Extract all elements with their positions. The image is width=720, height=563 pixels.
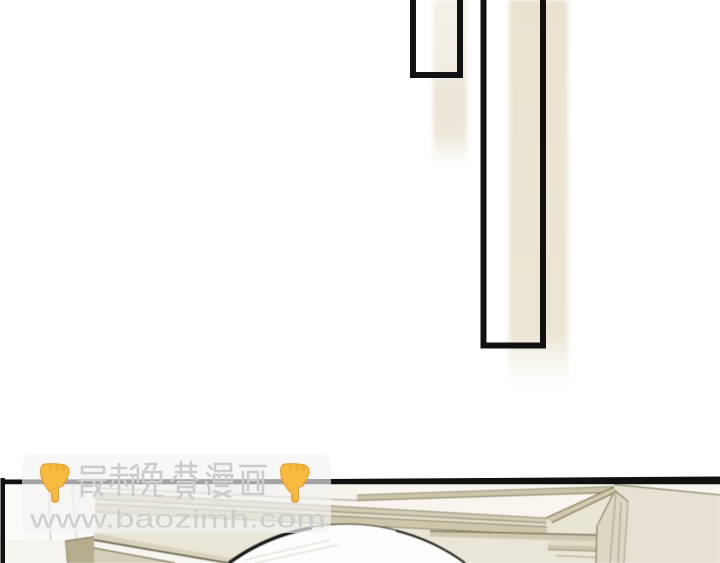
svg-text:www.baozimh.com: www.baozimh.com: [29, 506, 326, 534]
